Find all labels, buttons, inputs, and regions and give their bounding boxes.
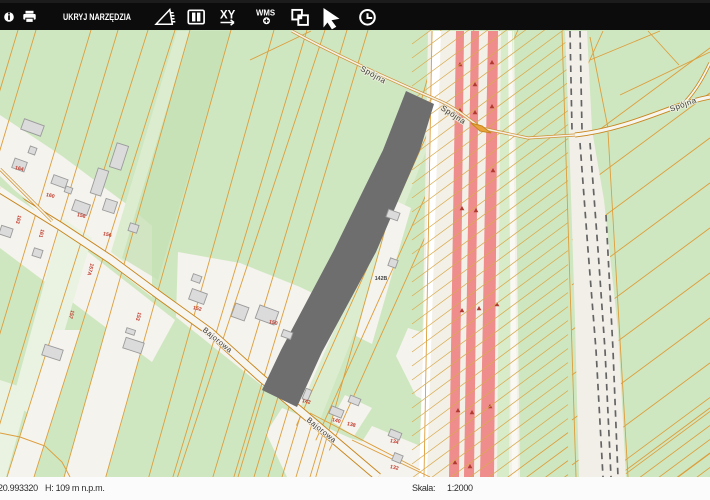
svg-text:WMS: WMS [256, 9, 275, 18]
svg-text:XY: XY [220, 10, 236, 22]
svg-text:142B: 142B [375, 276, 388, 282]
svg-text:UKRYJ NARZĘDZIA: UKRYJ NARZĘDZIA [63, 12, 132, 22]
